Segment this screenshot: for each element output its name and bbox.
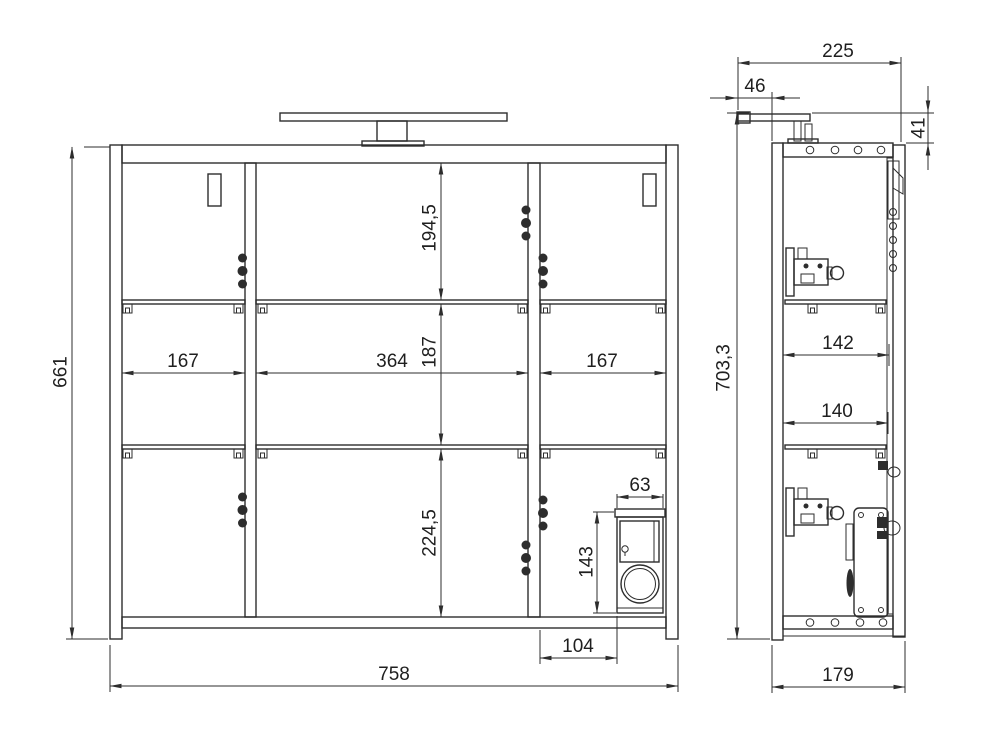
- side-bottom-panel: [783, 616, 893, 629]
- dim-body-depth: 179: [822, 665, 854, 686]
- front-bottom-panel: [122, 617, 666, 628]
- hinge-side-upper: [786, 248, 844, 296]
- side-shelf-2: [785, 445, 886, 458]
- socket-box-lid: [615, 509, 665, 517]
- screw-hole: [856, 619, 864, 627]
- side-dimensions: 225 46 41 703,3 142 140: [710, 41, 934, 693]
- dim-total-height-with-lamp: 703,3: [714, 344, 735, 392]
- dim-middle-compartment: 364: [376, 351, 408, 372]
- dim-top-section: 194,5: [420, 204, 441, 252]
- lamp-front: [280, 113, 507, 146]
- screw-hole: [806, 619, 814, 627]
- shelf-clip: [518, 449, 527, 458]
- screw-hole: [806, 146, 814, 154]
- front-shelf-row-1: [122, 300, 666, 304]
- hinge-icon: [521, 541, 531, 576]
- shelf-clip: [876, 304, 885, 313]
- lamp-side: [737, 112, 818, 143]
- dim-middle-section: 187: [420, 336, 441, 368]
- screw-hole: [877, 146, 885, 154]
- dim-socket-box-height: 143: [577, 546, 598, 578]
- screw-hole: [854, 146, 862, 154]
- side-front-wall: [772, 143, 783, 640]
- hinge-side-lower: [786, 488, 844, 536]
- left-top-cutout: [208, 174, 221, 206]
- top-panel-holes: [806, 146, 885, 154]
- wall-mount-bracket-bottom: [846, 461, 900, 617]
- dim-bottom-section: 224,5: [420, 509, 441, 557]
- dim-socket-box-offset: 104: [562, 636, 594, 657]
- shelf-clip: [258, 449, 267, 458]
- dim-lamp-height: 41: [909, 117, 930, 138]
- hinge-icon: [238, 254, 248, 289]
- front-shelf-row-2: [122, 445, 666, 449]
- shelf-clip: [234, 449, 243, 458]
- front-view: 661 758 167 364 167 194,5 187 224,5 63: [51, 113, 678, 692]
- hinge-icon: [538, 496, 548, 531]
- shelf-clip: [123, 304, 132, 313]
- screw-hole: [831, 619, 839, 627]
- shelf-clip: [541, 449, 550, 458]
- power-switch: [620, 521, 659, 562]
- screw-hole: [879, 619, 887, 627]
- screw-hole: [831, 146, 839, 154]
- shelf-clip: [808, 449, 817, 458]
- front-divider-left: [245, 163, 256, 617]
- shelf-clip: [518, 304, 527, 313]
- dim-left-compartment: 167: [167, 351, 199, 372]
- shelf-clip: [656, 304, 665, 313]
- shelf-clip: [234, 304, 243, 313]
- front-left-wall: [110, 145, 122, 639]
- hinge-icon: [238, 493, 248, 528]
- shelf-clip: [123, 449, 132, 458]
- socket-outlet: [621, 565, 659, 603]
- shelf-clip: [656, 449, 665, 458]
- drawing-svg: 661 758 167 364 167 194,5 187 224,5 63: [0, 0, 983, 737]
- hinge-icon: [521, 206, 531, 241]
- hinge-icon: [538, 254, 548, 289]
- dim-socket-box-width: 63: [629, 475, 650, 496]
- front-right-wall: [666, 145, 678, 639]
- front-dimensions: 661 758 167 364 167 194,5 187 224,5 63: [51, 147, 678, 692]
- dim-overall-height: 661: [51, 356, 72, 388]
- bottom-panel-holes: [806, 619, 887, 627]
- wall-mount-bracket-top: [888, 161, 903, 272]
- dim-total-depth: 225: [822, 41, 854, 62]
- side-top-panel: [783, 143, 893, 157]
- shelf-clips: [123, 304, 665, 458]
- front-top-panel: [122, 145, 666, 163]
- socket-box: [615, 509, 665, 613]
- shelf-clip: [258, 304, 267, 313]
- shelf-clip: [541, 304, 550, 313]
- hinge-markers-front: [238, 206, 549, 576]
- dim-inner-depth-lower: 140: [821, 401, 853, 422]
- shelf-clip: [876, 449, 885, 458]
- dim-inner-depth-upper: 142: [822, 333, 854, 354]
- dim-lamp-overhang: 46: [744, 76, 765, 97]
- shelf-clip: [808, 304, 817, 313]
- front-divider-right: [528, 163, 540, 617]
- dim-right-compartment: 167: [586, 351, 618, 372]
- right-top-cutout: [643, 174, 656, 206]
- technical-drawing-canvas: 661 758 167 364 167 194,5 187 224,5 63: [0, 0, 983, 737]
- side-view: 225 46 41 703,3 142 140: [710, 41, 934, 693]
- dim-overall-width: 758: [378, 664, 410, 685]
- bulb-icon: [622, 546, 628, 556]
- side-shelf-1: [785, 300, 886, 313]
